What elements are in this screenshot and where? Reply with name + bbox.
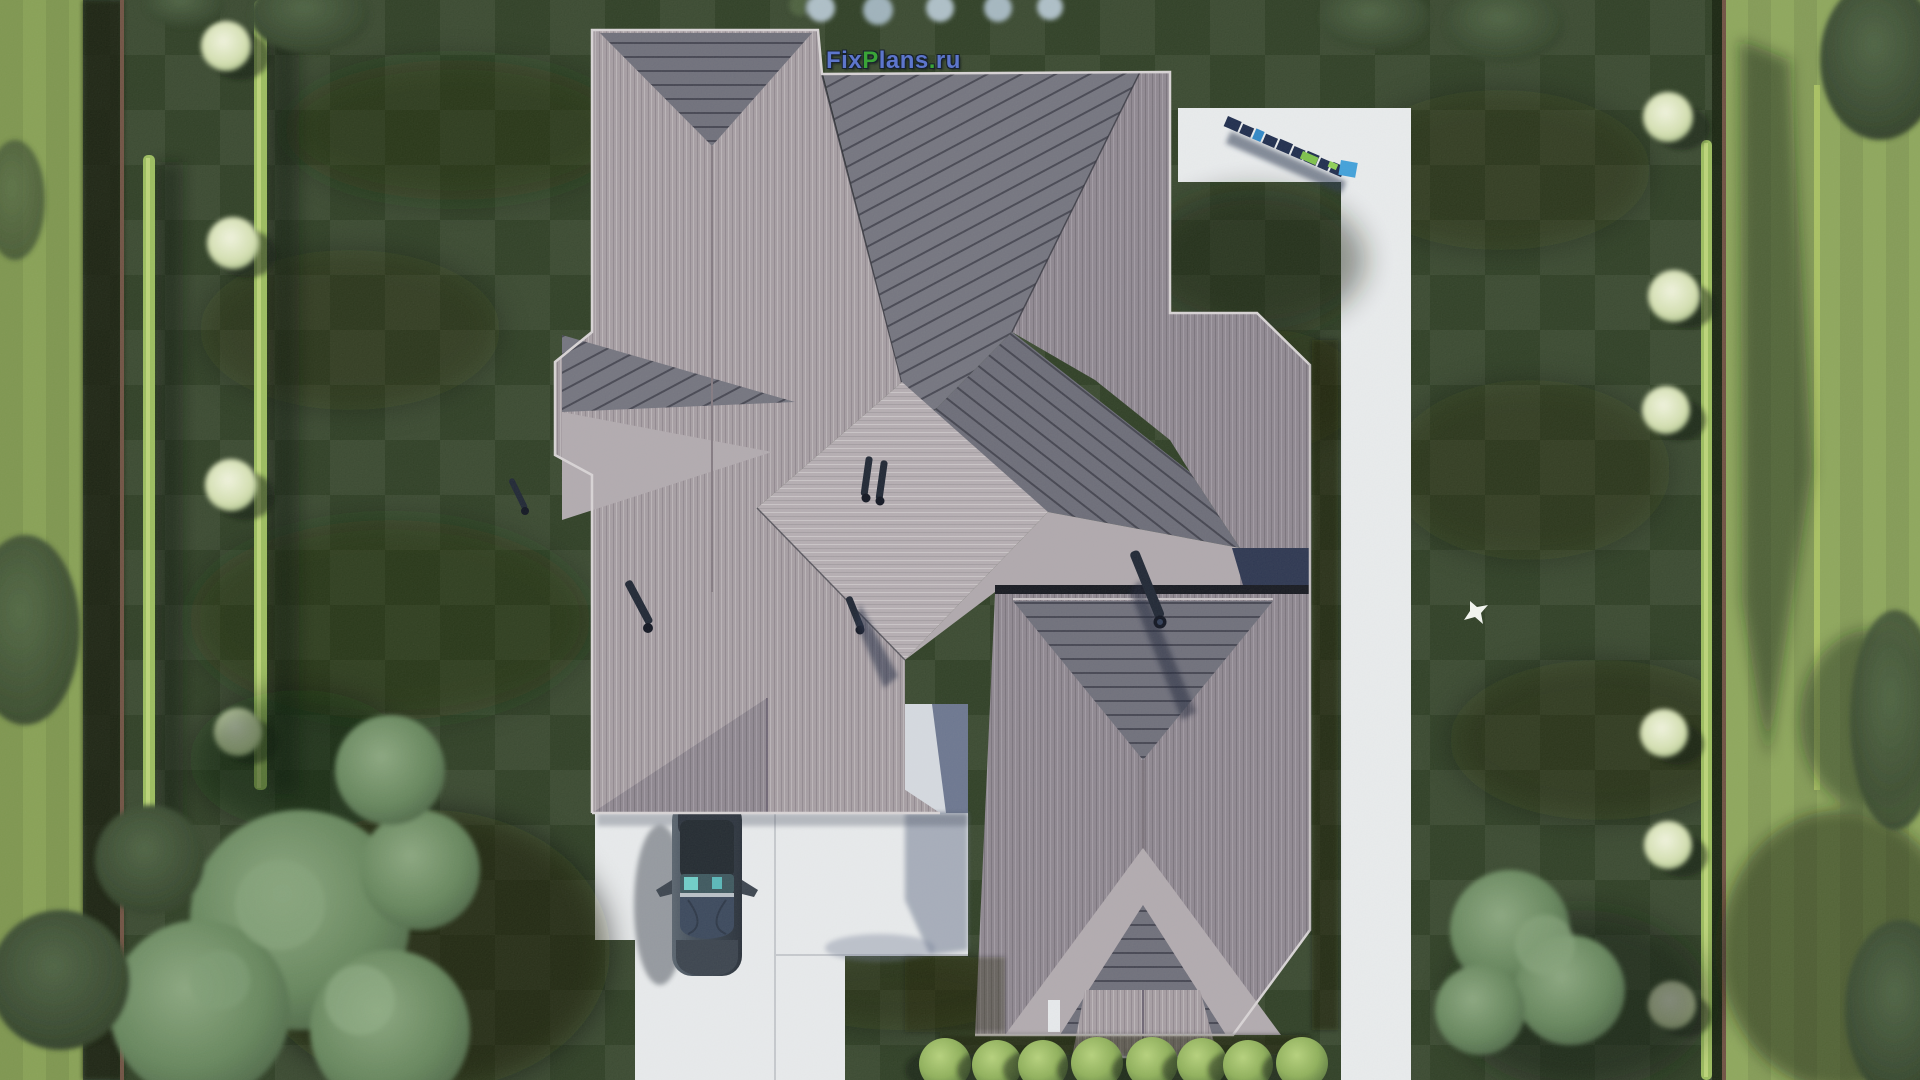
watermark-part: . (929, 47, 936, 74)
aerial-render: FixPlans.ru (0, 0, 1920, 1080)
grain-overlay (0, 0, 1920, 1080)
watermark-part: lans (879, 47, 929, 74)
watermark-part: Fix (826, 47, 862, 74)
watermark: FixPlans.ru (826, 47, 961, 75)
scene-canvas (0, 0, 1920, 1080)
watermark-part: P (862, 47, 879, 74)
watermark-part: ru (936, 47, 961, 74)
